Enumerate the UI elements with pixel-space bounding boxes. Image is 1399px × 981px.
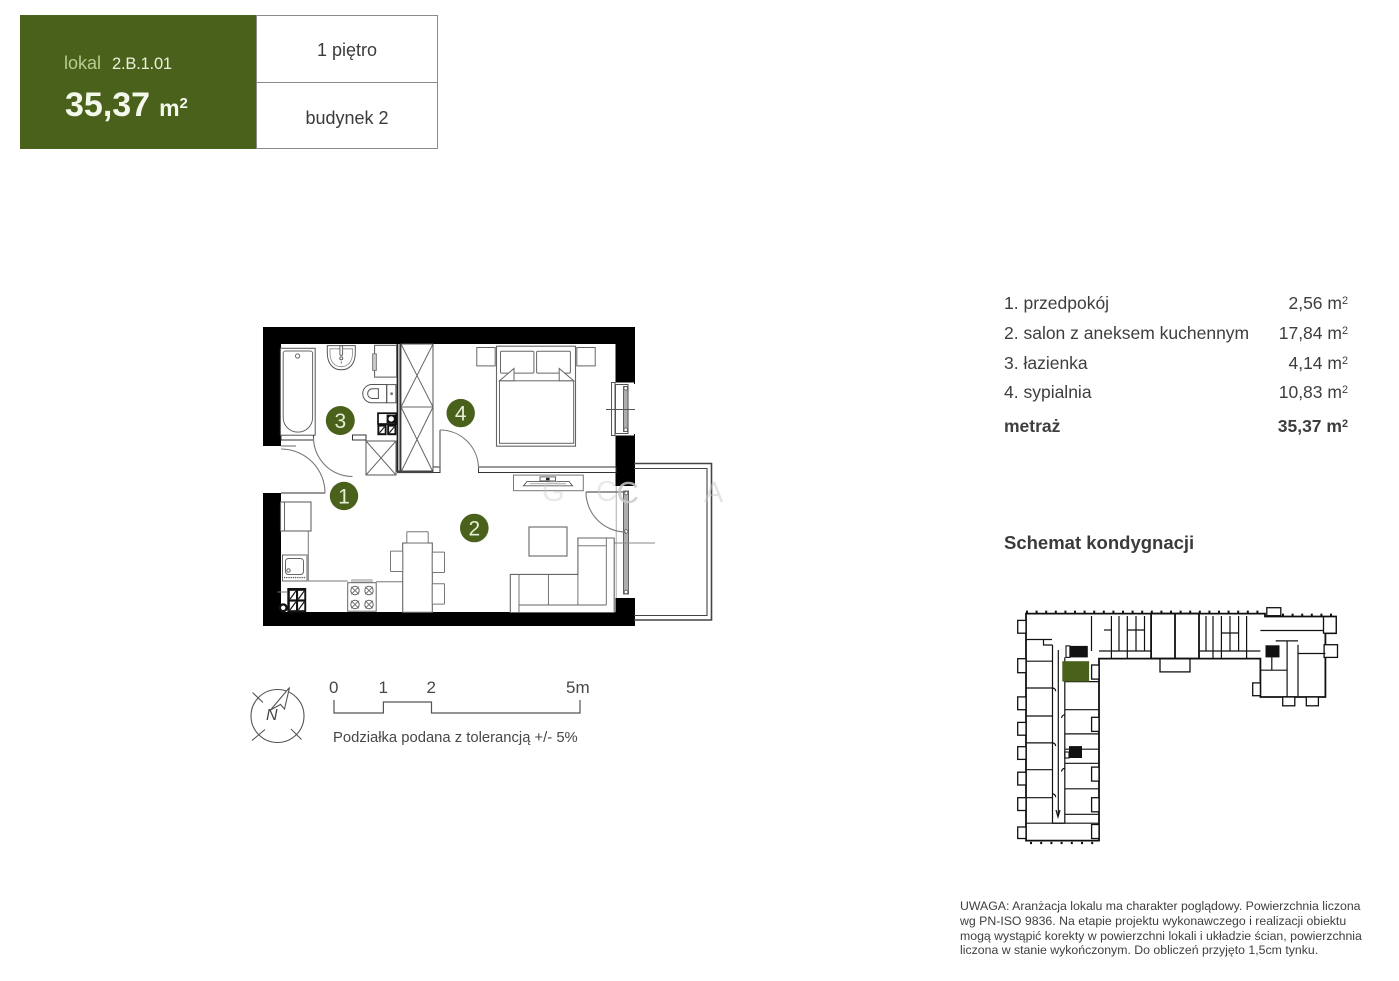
svg-text:0: 0 — [329, 678, 338, 697]
svg-text:3: 3 — [334, 410, 346, 433]
svg-text:G: G — [542, 476, 565, 508]
svg-text:1: 1 — [379, 678, 388, 697]
svg-text:C: C — [596, 476, 617, 508]
svg-text:1: 1 — [338, 486, 350, 509]
svg-text:5m: 5m — [566, 678, 590, 697]
svg-text:2: 2 — [468, 518, 480, 541]
svg-text:N: N — [266, 707, 278, 724]
svg-text:4: 4 — [455, 403, 467, 426]
svg-text:C: C — [617, 475, 639, 510]
svg-text:A: A — [704, 477, 724, 509]
svg-text:2: 2 — [427, 678, 436, 697]
svg-text:Podziałka podana z tolerancją: Podziałka podana z tolerancją +/- 5% — [333, 730, 578, 746]
